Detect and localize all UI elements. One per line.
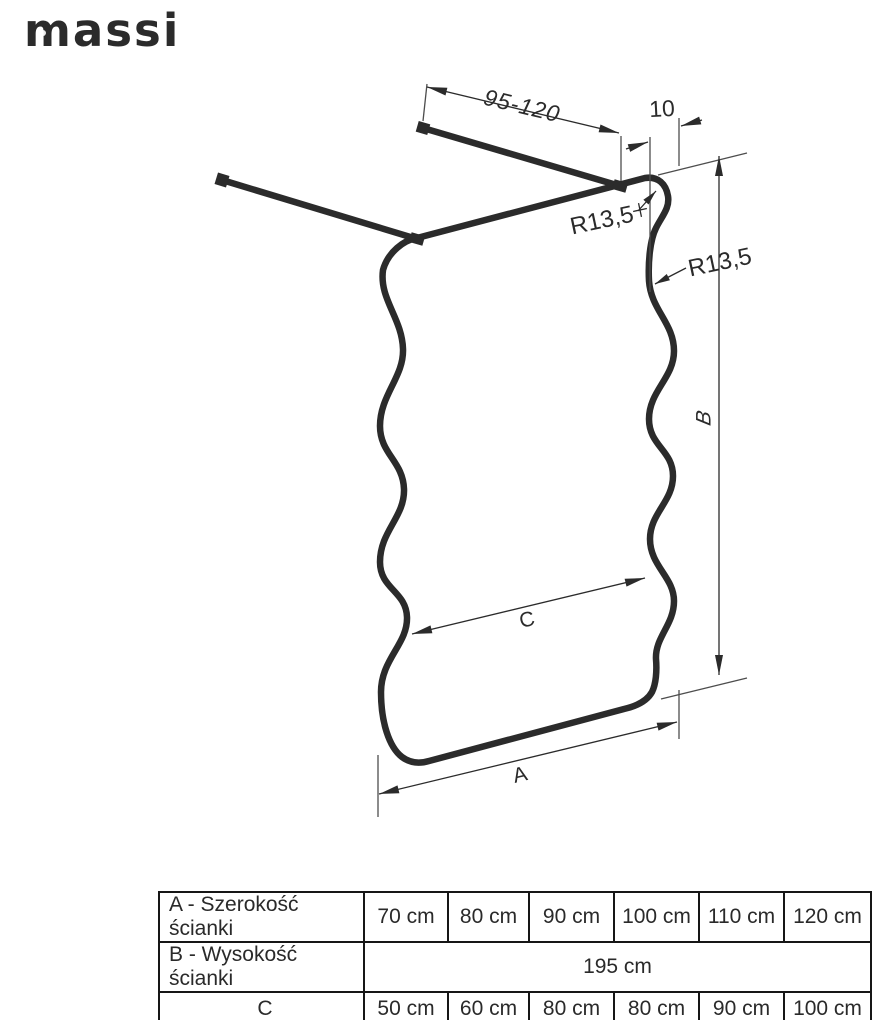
mounts	[215, 121, 629, 246]
table-row-B: B - Wysokość ścianki 195 cm	[159, 942, 871, 992]
cell-A-90: 90 cm	[529, 892, 614, 942]
page: massi	[0, 0, 879, 1020]
support-bar-top	[423, 128, 620, 186]
cell-B-merged: 195 cm	[364, 942, 871, 992]
row-label-C: C	[159, 992, 364, 1020]
radius-plus-mark	[632, 202, 649, 219]
table-row-A: A - Szerokość ścianki 70 cm 80 cm 90 cm …	[159, 892, 871, 942]
table-row-C: C 50 cm 60 cm 80 cm 80 cm 90 cm 100 cm	[159, 992, 871, 1020]
extension-lines	[378, 84, 747, 817]
dim-arrow-10-right	[681, 120, 702, 126]
technical-drawing	[0, 0, 879, 1020]
cell-C-50: 50 cm	[364, 992, 448, 1020]
support-bar-left	[222, 180, 417, 239]
row-label-B: B - Wysokość ścianki	[159, 942, 364, 992]
leader-radius-side	[655, 268, 686, 284]
wall-mount-left	[215, 173, 230, 188]
dimensions-table: A - Szerokość ścianki 70 cm 80 cm 90 cm …	[158, 891, 872, 1020]
cell-A-120: 120 cm	[784, 892, 871, 942]
leader-radius-top	[638, 191, 656, 211]
cell-C-90: 90 cm	[699, 992, 784, 1020]
dim-arrow-10-left	[626, 142, 648, 149]
row-label-A: A - Szerokość ścianki	[159, 892, 364, 942]
cell-C-60: 60 cm	[448, 992, 529, 1020]
cell-A-100: 100 cm	[614, 892, 699, 942]
dim-label-top-offset: 10	[649, 97, 676, 121]
cell-C-80a: 80 cm	[529, 992, 614, 1020]
cell-A-110: 110 cm	[699, 892, 784, 942]
cell-A-80: 80 cm	[448, 892, 529, 942]
cell-A-70: 70 cm	[364, 892, 448, 942]
panel-outline	[380, 178, 674, 763]
cell-C-80b: 80 cm	[614, 992, 699, 1020]
cell-C-100: 100 cm	[784, 992, 871, 1020]
